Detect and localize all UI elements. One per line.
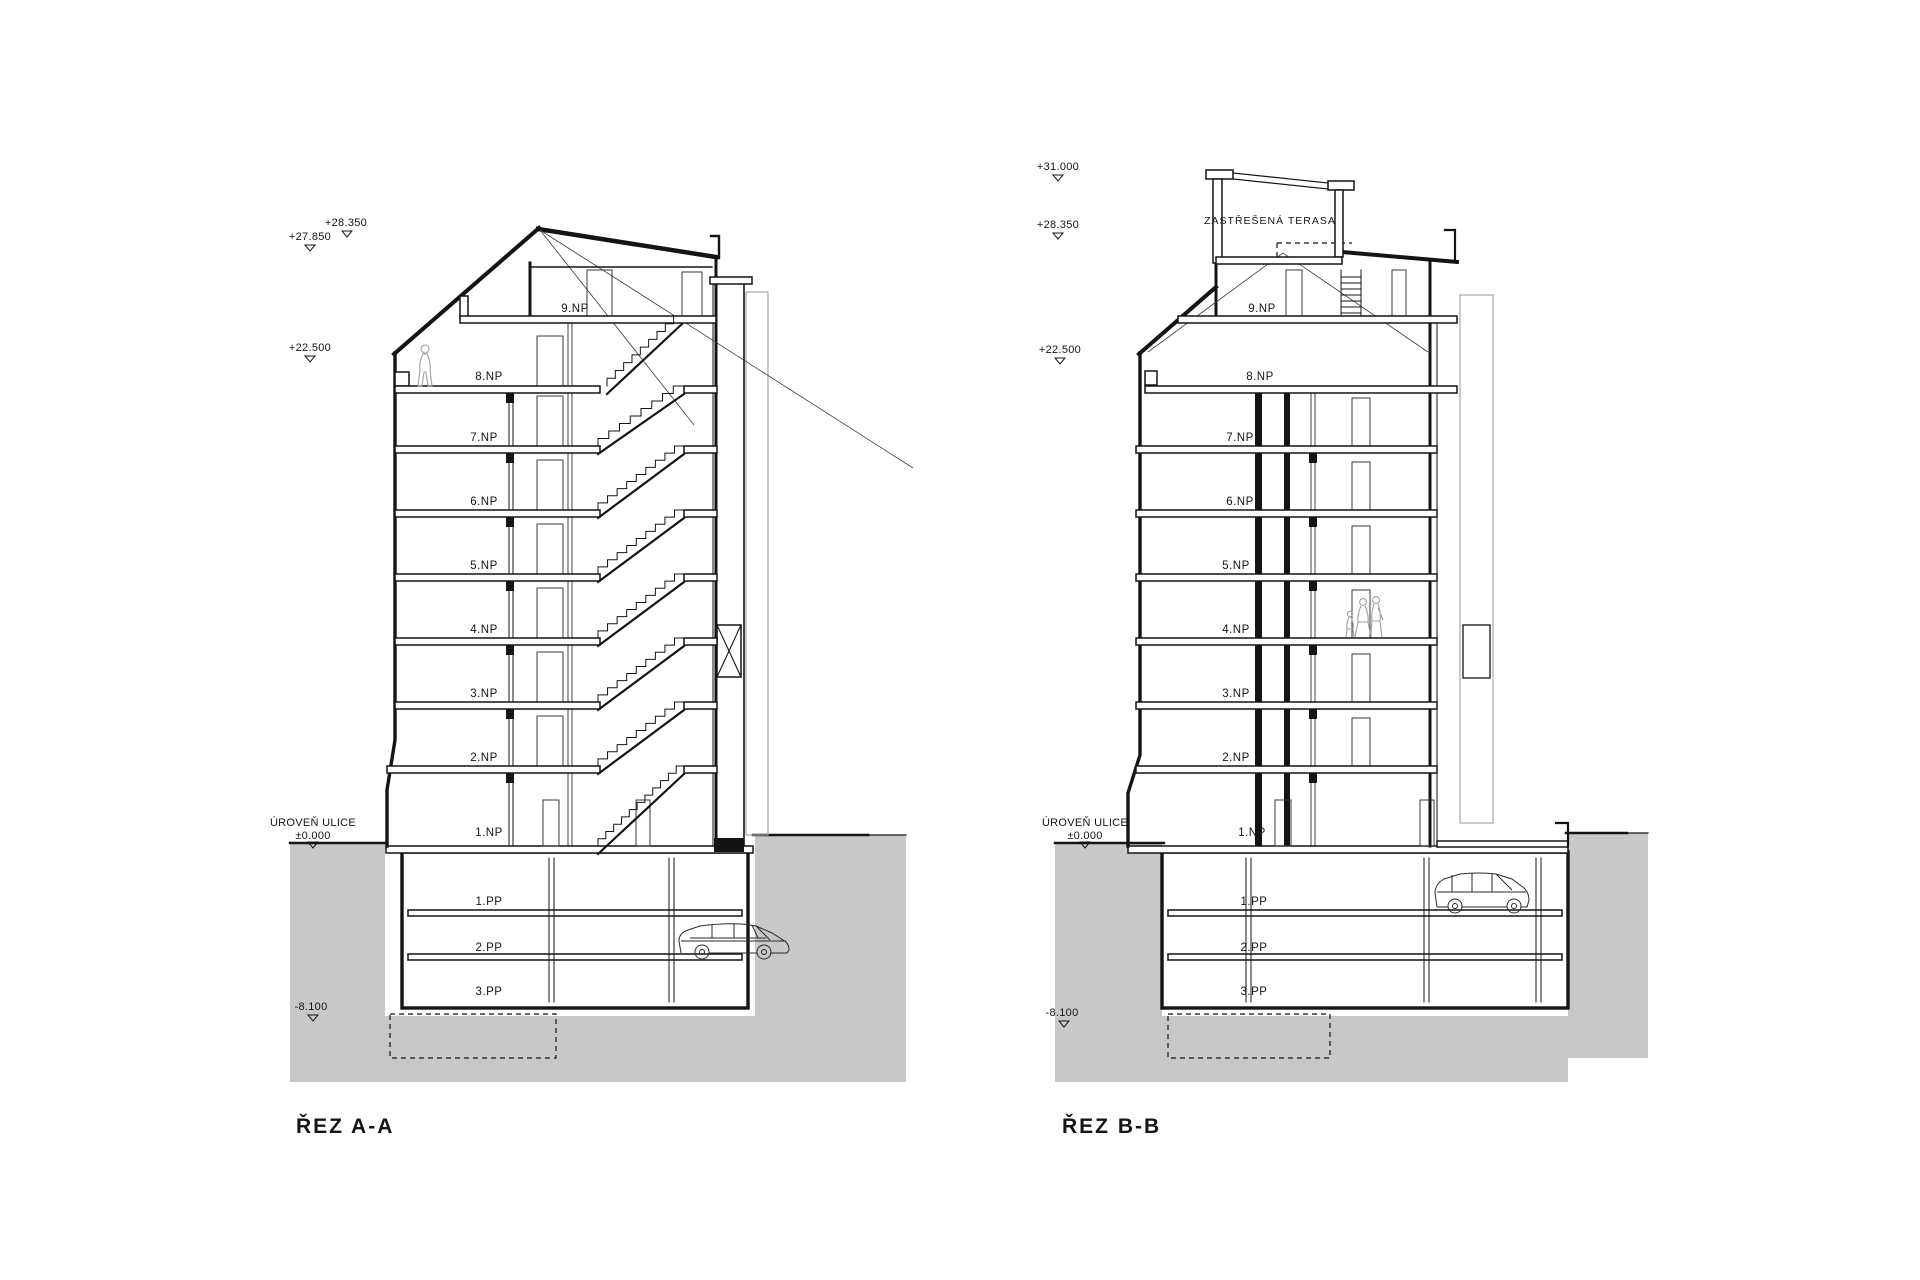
- floor-label-6np: 6.NP: [1226, 496, 1254, 508]
- floor-label-2np: 2.NP: [470, 752, 498, 764]
- floor-label-4np: 4.NP: [470, 624, 498, 636]
- section-b-title: ŘEZ B-B: [1062, 1114, 1161, 1138]
- floor-label-2pp: 2.PP: [1241, 942, 1268, 954]
- elevation-minus8100: -8.100: [295, 1001, 328, 1013]
- floor-label-1pp: 1.PP: [1241, 896, 1268, 908]
- street-level-label: ÚROVEŇ ULICE: [1042, 816, 1128, 829]
- floor-label-9np: 9.NP: [1248, 303, 1276, 315]
- floor-label-8np: 8.NP: [1246, 371, 1274, 383]
- floor-label-2pp: 2.PP: [476, 942, 503, 954]
- floor-label-3pp: 3.PP: [476, 986, 503, 998]
- section-b-slabs: [1136, 257, 1457, 773]
- street-level-label: ÚROVEŇ ULICE: [270, 816, 356, 829]
- section-a-basement: [402, 852, 789, 1008]
- section-b-interior: [1145, 270, 1434, 846]
- elevation-minus8100: -8.100: [1046, 1007, 1079, 1019]
- section-a-interior: [395, 263, 744, 852]
- floor-label-5np: 5.NP: [1222, 560, 1250, 572]
- section-a-slabs: [387, 316, 717, 773]
- terrace-stair: [1341, 270, 1361, 318]
- roof-slope: [394, 228, 539, 354]
- floor-label-3np: 3.NP: [470, 688, 498, 700]
- elevation-27850: +27.850: [289, 231, 331, 243]
- floor-label-1np: 1.NP: [1238, 827, 1266, 839]
- elevation-28350: +28.350: [1037, 219, 1079, 231]
- floor-label-2np: 2.NP: [1222, 752, 1250, 764]
- floor-label-8np: 8.NP: [475, 371, 503, 383]
- floor-label-6np: 6.NP: [470, 496, 498, 508]
- section-b-drawing: ZASTŘEŠENÁ TERASA +31.000 +28.350 +22.50…: [1037, 161, 1648, 1138]
- section-a-title: ŘEZ A-A: [296, 1114, 394, 1138]
- floor-label-4np: 4.NP: [1222, 624, 1250, 636]
- street-level-elevation: ±0.000: [1067, 830, 1102, 842]
- person-silhouette: [418, 345, 432, 386]
- architectural-drawing: +28.350 +27.850 +22.500 ÚROVEŇ ULICE ±0.…: [0, 0, 1920, 1280]
- terrace-label: ZASTŘEŠENÁ TERASA: [1204, 214, 1336, 227]
- roof-top: [538, 229, 716, 257]
- elevator-shaft: [1463, 625, 1490, 678]
- elevation-22500: +22.500: [289, 342, 331, 354]
- floor-label-3np: 3.NP: [1222, 688, 1250, 700]
- section-b-basement: [1162, 852, 1568, 1008]
- elevator-shaft: [717, 625, 741, 677]
- adjacent-building-outline: [1460, 295, 1493, 823]
- floor-label-7np: 7.NP: [1226, 432, 1254, 444]
- street-level-elevation: ±0.000: [295, 830, 330, 842]
- elevation-22500: +22.500: [1039, 344, 1081, 356]
- drawing-canvas: +28.350 +27.850 +22.500 ÚROVEŇ ULICE ±0.…: [0, 0, 1920, 1280]
- floor-label-1pp: 1.PP: [476, 896, 503, 908]
- floor-label-9np: 9.NP: [561, 303, 589, 315]
- floor-label-3pp: 3.PP: [1241, 986, 1268, 998]
- section-a-drawing: +28.350 +27.850 +22.500 ÚROVEŇ ULICE ±0.…: [270, 217, 913, 1138]
- roof-top: [1342, 252, 1457, 262]
- floor-label-5np: 5.NP: [470, 560, 498, 572]
- floor-label-7np: 7.NP: [470, 432, 498, 444]
- floor-label-1np: 1.NP: [475, 827, 503, 839]
- elevation-28350: +28.350: [325, 217, 367, 229]
- elevation-31000: +31.000: [1037, 161, 1079, 173]
